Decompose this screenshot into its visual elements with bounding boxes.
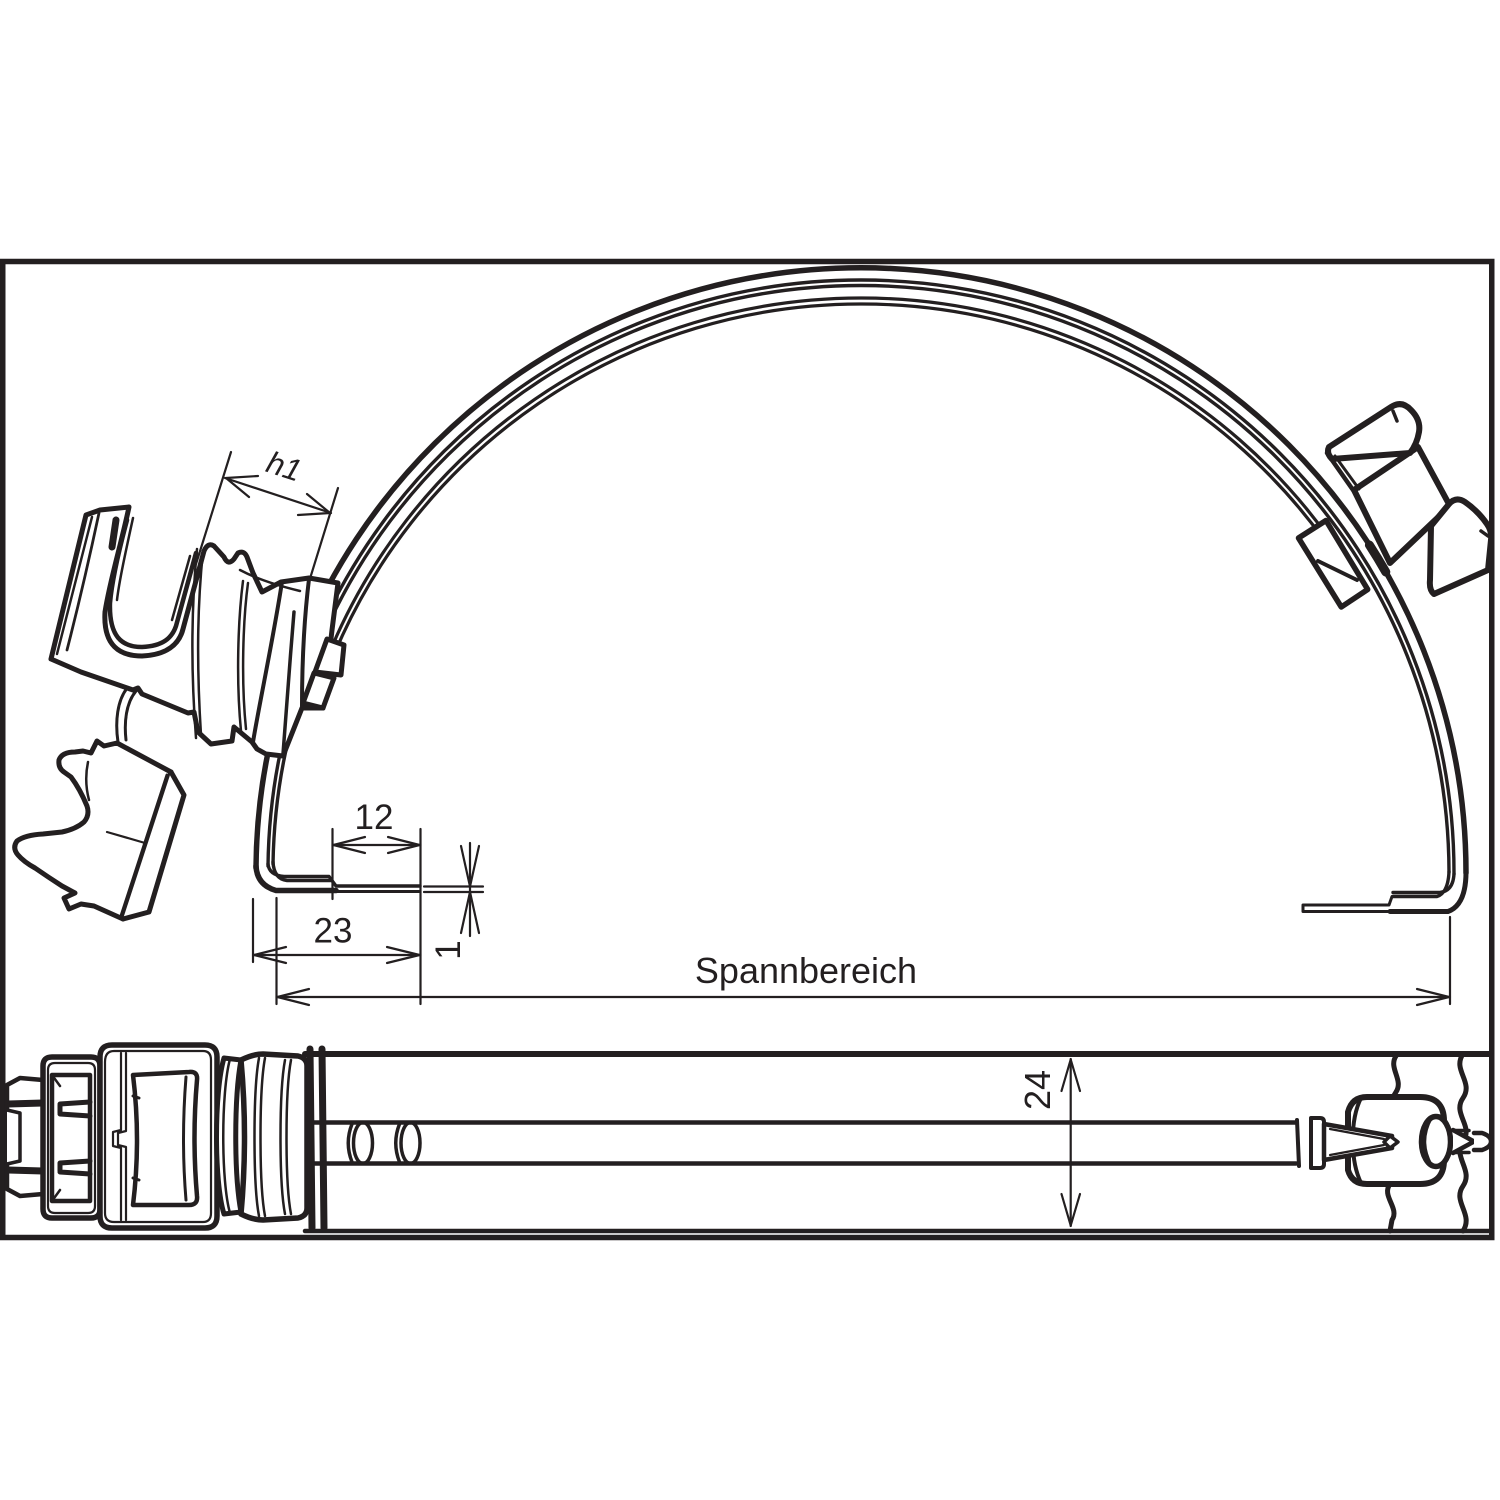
svg-text:24: 24	[1017, 1070, 1058, 1110]
svg-text:12: 12	[355, 798, 394, 837]
svg-text:23: 23	[314, 912, 353, 951]
svg-text:1: 1	[429, 940, 468, 959]
svg-text:Spannbereich: Spannbereich	[695, 950, 917, 991]
